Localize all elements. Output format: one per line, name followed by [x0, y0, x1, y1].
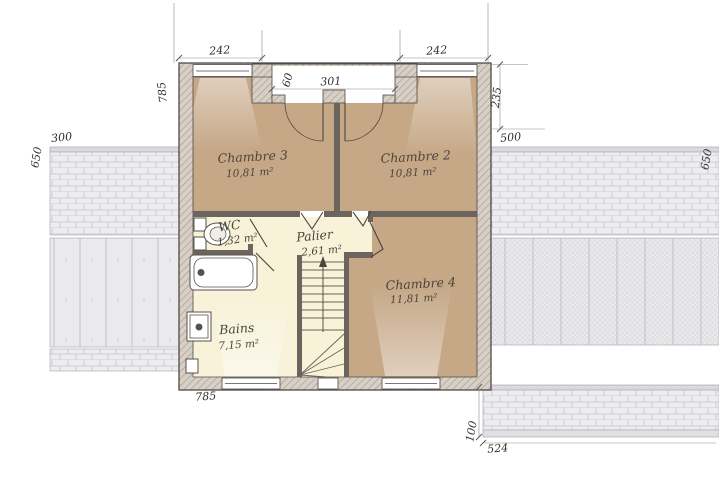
- roof-left: [50, 147, 179, 371]
- dim-niche-width: 301: [320, 74, 342, 88]
- wall-palier-bottom: [344, 252, 373, 258]
- wall-mid-center: [324, 211, 352, 217]
- window-bottom-stair: [318, 378, 338, 389]
- niche-center-stub: [323, 90, 345, 103]
- roof-right: [491, 147, 719, 345]
- dim-right-wall-top: 235: [489, 86, 505, 109]
- room-bains-label: Bains: [218, 320, 255, 337]
- wall-wc-bains: [193, 250, 253, 255]
- room-chambre3-area: 10,81 m²: [226, 166, 274, 180]
- window-top-left: [193, 65, 252, 77]
- wall-ch3-ch2: [334, 103, 340, 211]
- wall-ch2-ch4: [372, 211, 477, 217]
- bathtub-icon: [190, 255, 257, 290]
- dim-terrace-width: 524: [487, 441, 509, 455]
- dim-right-offset: 500: [500, 130, 522, 145]
- dim-window-left: 242: [208, 43, 231, 58]
- roof-bottom-right: [483, 385, 719, 437]
- room-wc-label: WC: [217, 216, 242, 234]
- room-chambre2-area: 10,81 m²: [389, 166, 437, 180]
- floor-plan-page: 242 242 301 60 785 235 300 650 500 650 7…: [0, 0, 719, 500]
- window-bottom-bains: [222, 378, 280, 389]
- window-bottom-chambre4: [382, 378, 440, 389]
- wall-stair-left: [297, 255, 302, 377]
- dim-left-offset: 300: [51, 130, 73, 145]
- washbasin-icon: [187, 312, 211, 341]
- dim-bottom-wall: 785: [195, 389, 217, 403]
- wall-mid-left: [193, 211, 300, 217]
- window-top-right: [417, 65, 477, 77]
- wall-stair-right: [344, 258, 349, 377]
- dim-window-right: 242: [425, 43, 448, 58]
- wall-post: [186, 359, 198, 373]
- dim-left-wall: 785: [155, 81, 170, 103]
- room-chambre4-area: 11,81 m²: [390, 292, 438, 306]
- floor-plan-svg: 242 242 301 60 785 235 300 650 500 650 7…: [0, 0, 719, 500]
